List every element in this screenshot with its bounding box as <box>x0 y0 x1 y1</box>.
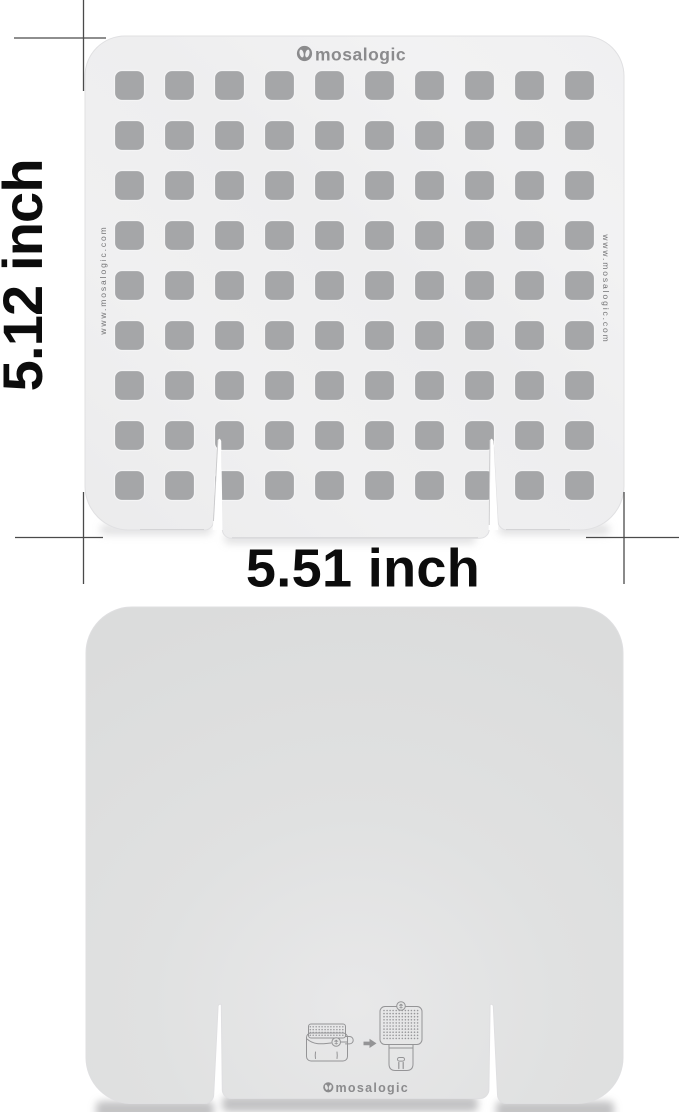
svg-text:www.mosalogic.com: www.mosalogic.com <box>601 233 611 343</box>
svg-text:www.mosalogic.com: www.mosalogic.com <box>98 225 108 335</box>
svg-text:5.12 inch: 5.12 inch <box>0 159 54 391</box>
svg-text:mosalogic: mosalogic <box>315 45 406 65</box>
svg-text:mosalogic: mosalogic <box>336 1081 410 1095</box>
svg-text:5.51 inch: 5.51 inch <box>246 539 480 599</box>
